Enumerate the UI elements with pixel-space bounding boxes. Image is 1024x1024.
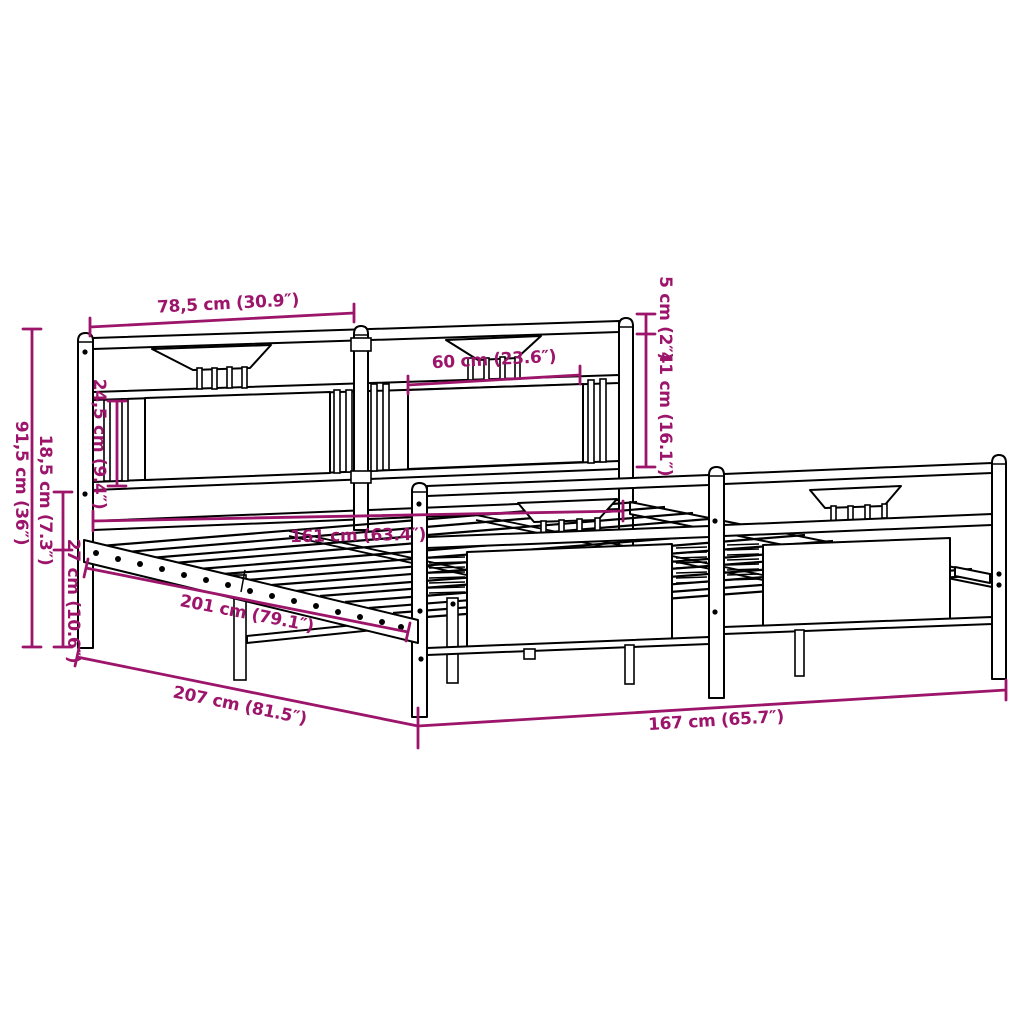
headboard-left-panel [145,392,330,480]
dimension-label: 5 cm (2″) [655,276,675,360]
dimension-label: 18,5 cm (7.3″) [35,435,55,566]
bed-frame-diagram: 78,5 cm (30.9″) 60 cm (23.6″) 5 cm (2″) … [0,0,1024,1024]
support-leg [447,598,458,683]
center-post-connector [351,338,371,351]
footboard-near-top-rail [427,475,709,496]
dimension-label: 27 cm (10.6″) [63,539,83,663]
dimension-label: 24,5 cm (9.4″) [89,379,109,510]
ornament-bar [197,368,202,389]
ornament-bar [541,521,546,533]
support-leg [795,630,804,676]
headboard-center-post [354,326,368,530]
ornament-bar [882,504,887,518]
footboard-far-mid-rail [724,514,992,536]
headboard-slat-bar [588,380,594,463]
dimension-label: 60 cm (23.6″) [431,347,556,373]
footboard-center-post [709,467,724,698]
slat-ends-hatch [429,557,465,593]
headboard-slat-bar [334,390,340,473]
support-leg [625,645,634,684]
headboard-slat-bar [346,390,352,472]
ornament-bar [242,367,247,388]
diagram-svg: 78,5 cm (30.9″) 60 cm (23.6″) 5 cm (2″) … [0,0,1024,1024]
headboard-slat-bar [600,379,606,462]
ornament-bar [212,368,217,389]
dimension-label: 161 cm (63.4″) [290,525,426,547]
dimension-label: 78,5 cm (30.9″) [157,290,300,317]
dimension-label: 91,5 cm (36″) [11,421,31,545]
dimension-line [637,314,655,467]
ornament-bar [227,367,232,388]
headboard-slat-bar [122,399,128,481]
footboard-far-panel [763,538,950,627]
dimension-post-cap-height: 5 cm (2″) 41 cm (16.1″) [637,276,675,476]
footboard-far-post [992,455,1006,679]
ornament-bar [865,505,870,519]
headboard-right-post [619,318,633,565]
headboard-left-ornament [152,345,271,370]
dimension-headboard-section-width: 78,5 cm (30.9″) [90,290,354,336]
dimension-label: 41 cm (16.1″) [655,352,675,476]
headboard-slat-bar [383,384,389,470]
panel-foot-tab [524,649,535,659]
headboard-right-panel [408,384,583,469]
footboard-far-top-rail [724,463,992,484]
ornament-bar [595,518,600,531]
footboard-far-section [724,455,1006,679]
ornament-bar [559,520,564,532]
ornament-bar [848,506,853,520]
headboard-slat-bar [371,384,377,471]
dimension-clearance-and-frame-height: 18,5 cm (7.3″) 27 cm (10.6″) [35,435,83,664]
ornament-bar [831,506,836,521]
center-post-connector [351,471,371,483]
footboard-near-panel [467,544,672,649]
footboard-near-post [412,483,427,717]
